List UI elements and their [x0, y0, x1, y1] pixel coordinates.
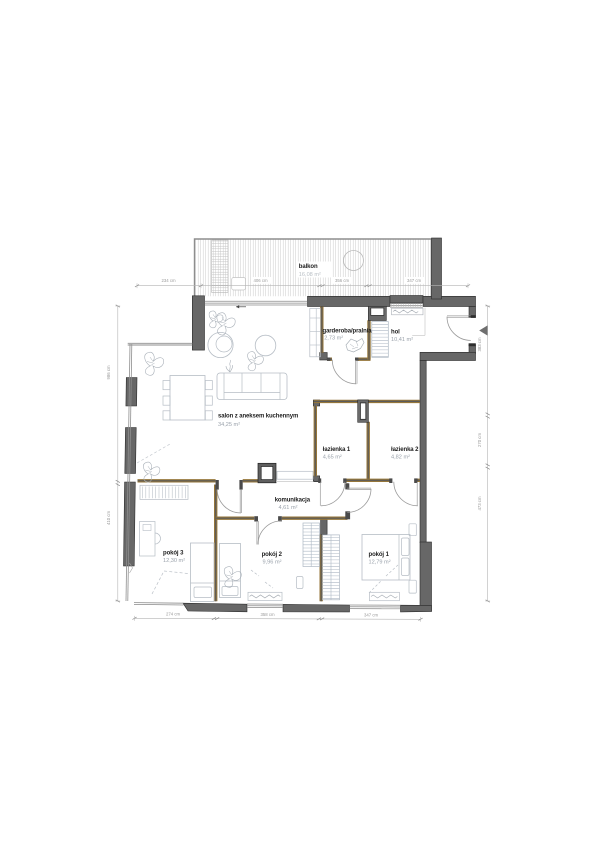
svg-text:473 cm: 473 cm — [477, 496, 482, 511]
svg-text:274 cm: 274 cm — [166, 612, 181, 617]
svg-text:356 cm: 356 cm — [335, 278, 350, 283]
svg-text:16,08 m²: 16,08 m² — [299, 272, 321, 278]
svg-text:270 cm: 270 cm — [477, 433, 482, 448]
svg-text:9,96 m²: 9,96 m² — [263, 559, 282, 565]
svg-text:komunikacja: komunikacja — [275, 498, 311, 504]
svg-text:2,73 m²: 2,73 m² — [324, 336, 343, 342]
svg-text:pokój 3: pokój 3 — [163, 551, 184, 557]
svg-text:34,25 m²: 34,25 m² — [218, 422, 240, 428]
svg-text:pokój 2: pokój 2 — [262, 552, 283, 558]
svg-text:4,61 m²: 4,61 m² — [279, 505, 298, 511]
svg-text:383 cm: 383 cm — [477, 337, 482, 352]
svg-text:łazienka 1: łazienka 1 — [323, 447, 351, 453]
svg-text:234 cm: 234 cm — [161, 278, 176, 283]
svg-text:pokój 1: pokój 1 — [369, 552, 390, 558]
svg-text:410 cm: 410 cm — [106, 511, 111, 526]
svg-text:10,41 m²: 10,41 m² — [391, 337, 413, 343]
svg-text:12,30 m²: 12,30 m² — [163, 558, 185, 564]
svg-text:986 cm: 986 cm — [106, 365, 111, 380]
svg-text:balkon: balkon — [299, 264, 318, 270]
svg-text:347 cm: 347 cm — [407, 278, 422, 283]
svg-text:salon z aneksem kuchennym: salon z aneksem kuchennym — [218, 414, 298, 420]
svg-text:12,79 m²: 12,79 m² — [369, 559, 391, 565]
svg-text:4,82 m²: 4,82 m² — [391, 454, 410, 460]
svg-text:406 cm: 406 cm — [253, 278, 268, 283]
svg-text:łazienka 2: łazienka 2 — [391, 447, 419, 453]
svg-text:hol: hol — [391, 330, 400, 336]
svg-text:garderoba/pralnia: garderoba/pralnia — [323, 328, 373, 334]
svg-text:358 cm: 358 cm — [260, 612, 275, 617]
svg-text:347 cm: 347 cm — [364, 612, 379, 617]
svg-text:4,65 m²: 4,65 m² — [323, 454, 342, 460]
